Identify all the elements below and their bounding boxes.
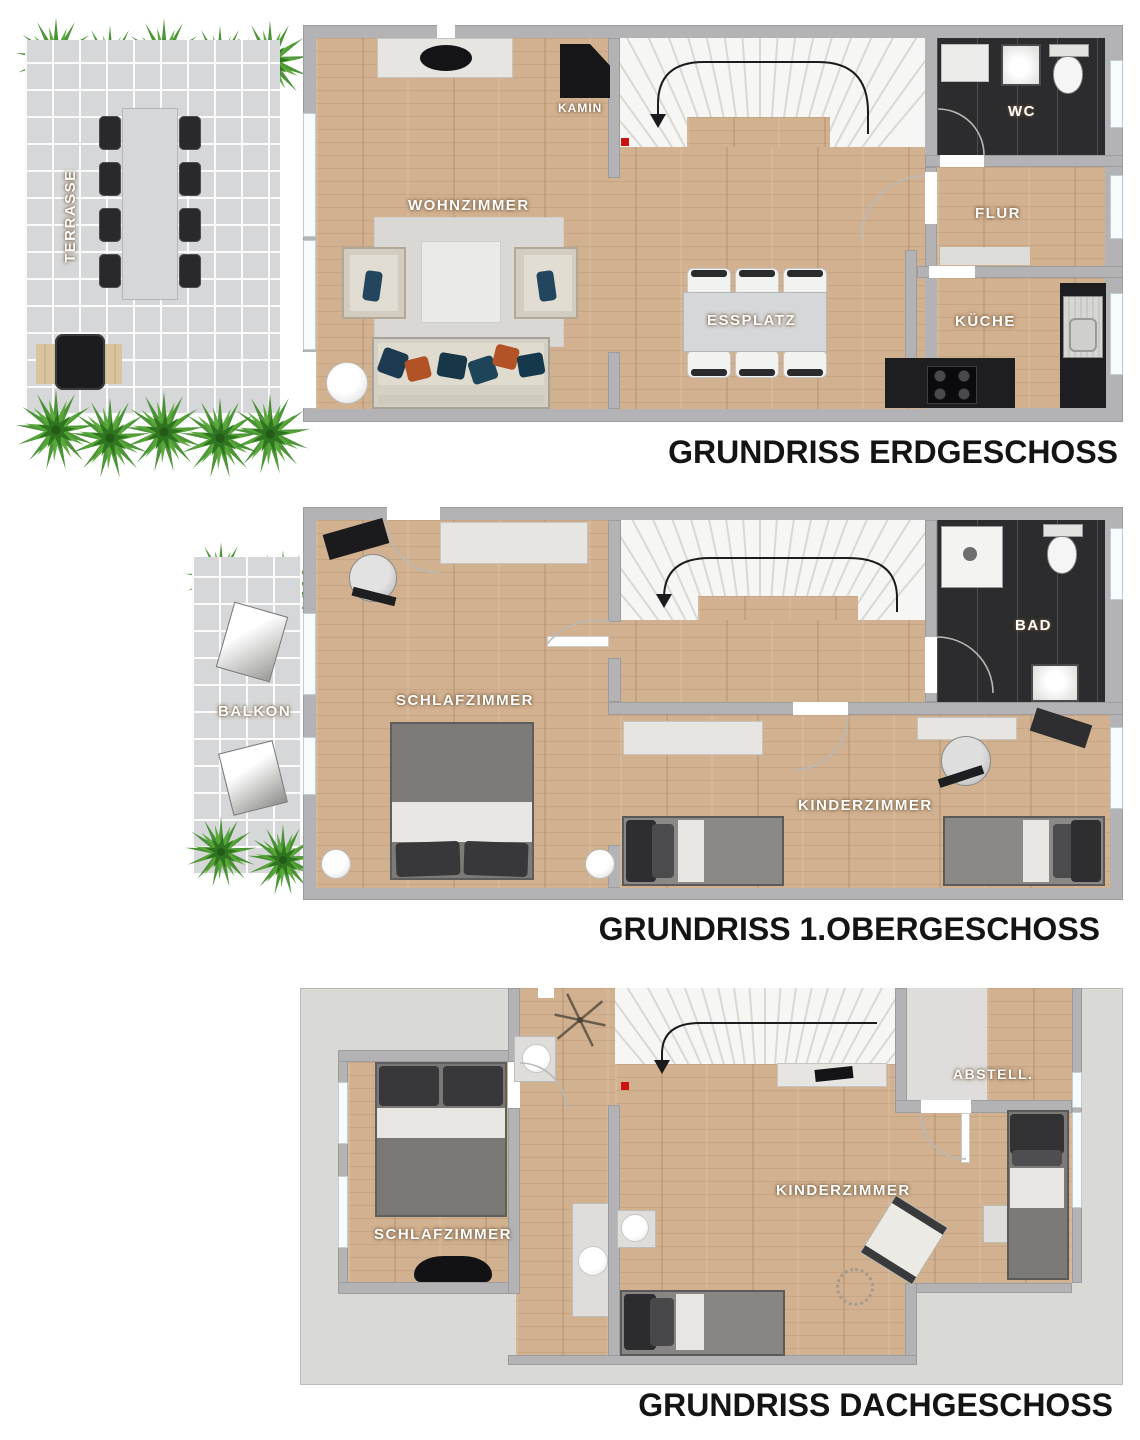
floor-title-erdgeschoss: GRUNDRISS ERDGESCHOSS bbox=[668, 434, 1118, 471]
skylight-dome bbox=[522, 1044, 551, 1073]
armchair bbox=[514, 247, 578, 319]
floorplan-canvas: TERRASSE bbox=[0, 0, 1140, 1440]
wardrobe bbox=[440, 522, 588, 564]
toilet bbox=[1047, 536, 1077, 574]
kitchen-sink-basin bbox=[1069, 318, 1097, 352]
wc-sink bbox=[1001, 44, 1041, 86]
wall bbox=[608, 352, 620, 409]
ceiling-fan-icon bbox=[550, 992, 610, 1048]
pillow bbox=[1010, 1114, 1064, 1154]
bath-sink bbox=[1031, 664, 1079, 702]
bed-sheet bbox=[1010, 1168, 1064, 1208]
storage-floor-grey bbox=[907, 988, 987, 1105]
room-label-wc: WC bbox=[1008, 103, 1036, 120]
pillow bbox=[650, 1298, 674, 1346]
pillow bbox=[463, 841, 528, 877]
stair-landing-notch bbox=[687, 117, 830, 147]
terrace-chair bbox=[179, 116, 201, 150]
terrace-table bbox=[122, 108, 178, 300]
window bbox=[1110, 60, 1123, 128]
wall bbox=[608, 38, 620, 178]
single-bed bbox=[620, 1290, 785, 1356]
wall bbox=[905, 250, 917, 360]
chair-back bbox=[787, 369, 823, 376]
window bbox=[1110, 528, 1123, 600]
room-label-balkon: BALKON bbox=[218, 703, 291, 720]
room-label-schlafzimmer-og: SCHLAFZIMMER bbox=[396, 692, 534, 709]
staircase-dg bbox=[615, 988, 935, 1064]
chair-back bbox=[739, 270, 775, 277]
wreath-decor bbox=[836, 1268, 874, 1306]
washer bbox=[941, 44, 989, 82]
pillow bbox=[652, 824, 674, 878]
single-bed bbox=[622, 816, 784, 886]
window bbox=[303, 737, 316, 795]
double-bed bbox=[375, 1062, 507, 1217]
door-opening bbox=[387, 507, 440, 520]
doormat bbox=[940, 247, 1030, 265]
wall bbox=[338, 1282, 520, 1294]
bed-sheet bbox=[392, 802, 532, 842]
window bbox=[303, 113, 316, 237]
plant-icon bbox=[228, 388, 312, 480]
window bbox=[1072, 1112, 1082, 1208]
armchair bbox=[342, 247, 406, 319]
wall bbox=[338, 1050, 520, 1062]
wall bbox=[608, 520, 621, 622]
room-label-kinderzimmer-og: KINDERZIMMER bbox=[798, 797, 933, 814]
lamp bbox=[420, 45, 472, 71]
door-marker bbox=[538, 988, 554, 998]
room-label-kamin: KAMIN bbox=[558, 101, 602, 115]
chair-back bbox=[691, 369, 727, 376]
window bbox=[1110, 175, 1123, 239]
side-table bbox=[585, 849, 615, 879]
dining-chair bbox=[735, 350, 779, 378]
stair-landing-notch bbox=[698, 596, 858, 620]
dining-chair bbox=[687, 350, 731, 378]
bed-sheet bbox=[1023, 820, 1049, 882]
shower-head bbox=[963, 547, 977, 561]
wall bbox=[508, 1355, 917, 1365]
window bbox=[1110, 293, 1123, 375]
room-label-bad: BAD bbox=[1015, 617, 1052, 634]
window bbox=[338, 1082, 348, 1144]
door-opening bbox=[940, 155, 984, 167]
window bbox=[338, 1176, 348, 1248]
door-opening bbox=[921, 1100, 971, 1113]
door-leaf bbox=[547, 636, 609, 647]
wall bbox=[895, 988, 907, 1105]
room-label-kueche: KÜCHE bbox=[955, 313, 1016, 330]
room-label-wohnzimmer: WOHNZIMMER bbox=[408, 197, 530, 214]
terrace-door-opening bbox=[303, 352, 316, 408]
room-label-kinderzimmer-dg: KINDERZIMMER bbox=[776, 1182, 911, 1199]
stove bbox=[927, 366, 977, 404]
skylight-dome bbox=[621, 1214, 649, 1242]
room-label-abstell: ABSTELL. bbox=[953, 1066, 1033, 1082]
terrace-chair bbox=[99, 116, 121, 150]
tv bbox=[414, 1256, 492, 1282]
terrace-chair bbox=[99, 162, 121, 196]
wall bbox=[608, 658, 621, 702]
sofa bbox=[372, 337, 550, 409]
terrace-chair bbox=[99, 208, 121, 242]
chair-back bbox=[787, 270, 823, 277]
side-table bbox=[321, 849, 351, 879]
smoke-detector-marker bbox=[621, 1082, 629, 1090]
single-bed bbox=[943, 816, 1105, 886]
door-opening bbox=[925, 172, 937, 224]
bed-sheet bbox=[678, 820, 704, 882]
sofa-back bbox=[378, 395, 544, 405]
floor-title-obergeschoss: GRUNDRISS 1.OBERGESCHOSS bbox=[599, 911, 1100, 948]
terrace-chair bbox=[99, 254, 121, 288]
pillow bbox=[1071, 820, 1101, 882]
floor-title-dachgeschoss: GRUNDRISS DACHGESCHOSS bbox=[638, 1387, 1113, 1424]
window bbox=[1072, 1072, 1082, 1108]
single-bed bbox=[1007, 1110, 1069, 1280]
window bbox=[303, 613, 316, 695]
grill bbox=[55, 334, 105, 390]
wall bbox=[508, 1108, 520, 1294]
chair-back bbox=[691, 270, 727, 277]
terrace-chair bbox=[179, 208, 201, 242]
pillow bbox=[516, 352, 545, 378]
wall bbox=[905, 1283, 917, 1357]
pillow bbox=[436, 352, 468, 380]
door-marker bbox=[437, 25, 455, 38]
coffee-table bbox=[421, 241, 501, 323]
pillow bbox=[395, 841, 460, 877]
closet bbox=[623, 721, 763, 755]
room-label-schlafzimmer-dg: SCHLAFZIMMER bbox=[374, 1226, 512, 1243]
pillow bbox=[1012, 1150, 1062, 1166]
door-opening bbox=[793, 702, 848, 715]
room-label-terrasse: TERRASSE bbox=[62, 169, 79, 263]
terrace-chair bbox=[179, 162, 201, 196]
window bbox=[1110, 727, 1123, 809]
smoke-detector-marker bbox=[621, 138, 629, 146]
side-table bbox=[326, 362, 368, 404]
door-opening bbox=[929, 266, 975, 278]
terrace-chair bbox=[179, 254, 201, 288]
bed-sheet bbox=[377, 1108, 505, 1138]
pillow bbox=[443, 1066, 503, 1106]
storage-floor-wood bbox=[987, 988, 1072, 1105]
room-label-essplatz: ESSPLATZ bbox=[707, 312, 796, 329]
window bbox=[303, 240, 316, 350]
skylight-dome bbox=[578, 1246, 608, 1276]
pillow bbox=[379, 1066, 439, 1106]
toilet bbox=[1053, 56, 1083, 94]
bed-sheet bbox=[676, 1294, 704, 1350]
double-bed bbox=[390, 722, 534, 880]
door-leaf bbox=[961, 1113, 970, 1163]
wall bbox=[905, 1283, 1072, 1293]
chair-back bbox=[739, 369, 775, 376]
room-label-flur: FLUR bbox=[975, 205, 1021, 222]
dining-chair bbox=[783, 350, 827, 378]
door-opening bbox=[925, 637, 937, 693]
